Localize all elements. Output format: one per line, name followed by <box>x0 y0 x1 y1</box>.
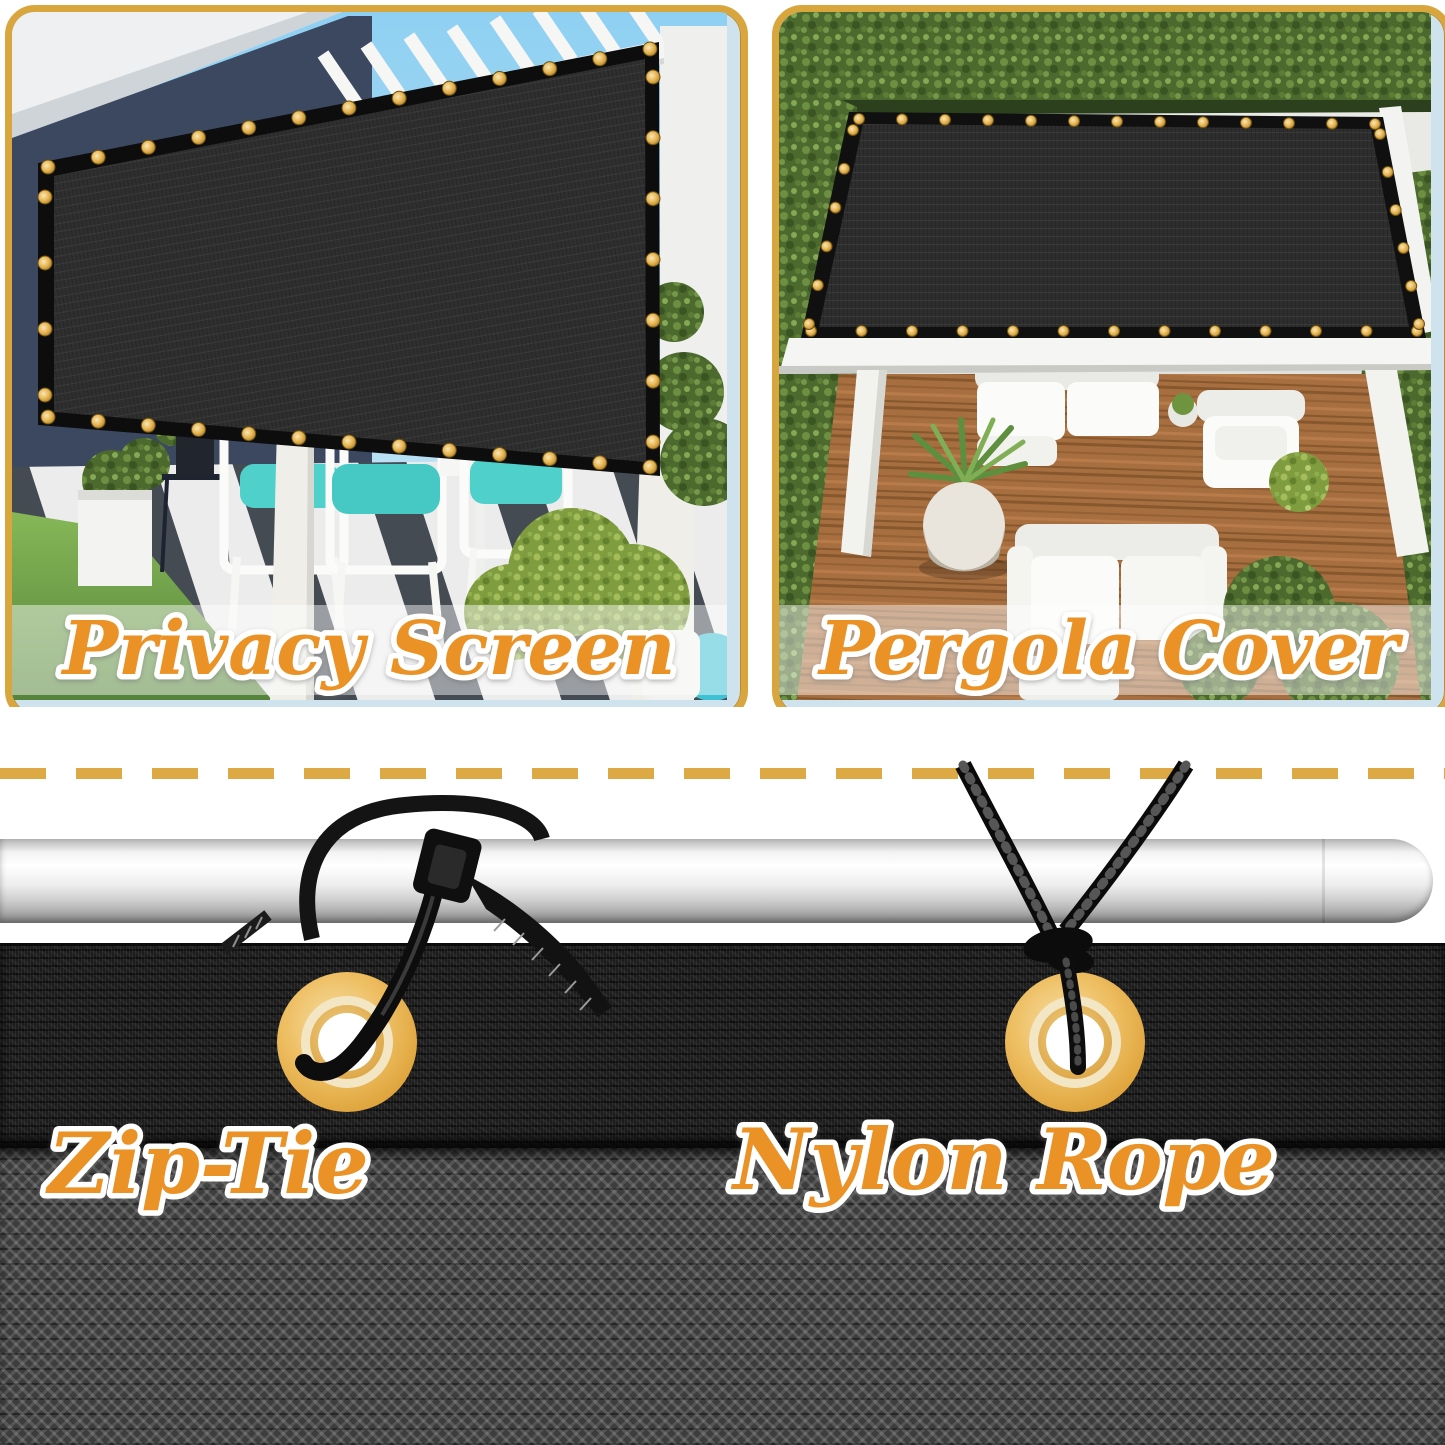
pergola-cover-mesh <box>801 112 1426 338</box>
pergola-cover-label: Pergola Cover <box>817 606 1404 692</box>
panel-privacy-screen: Privacy Screen <box>5 5 748 721</box>
pergola-cover-photo: Pergola Cover <box>779 12 1431 700</box>
privacy-screen-label: Privacy Screen <box>61 606 676 692</box>
product-feature-collage: Privacy Screen <box>0 0 1445 1445</box>
nylon-rope-label: Nylon Rope <box>730 1110 1275 1209</box>
fasteners-overlay: Zip-Tie Nylon Rope <box>0 707 1445 1445</box>
panel-pergola-cover: Pergola Cover <box>772 5 1445 721</box>
installation-detail-panel: Zip-Tie Nylon Rope <box>0 707 1445 1445</box>
privacy-screen-photo: Privacy Screen <box>12 12 727 700</box>
zip-tie-label: Zip-Tie <box>45 1114 369 1213</box>
hedge-top <box>779 12 1431 115</box>
zip-tie-head <box>411 827 483 905</box>
nylon-rope-illustration <box>963 765 1186 1067</box>
